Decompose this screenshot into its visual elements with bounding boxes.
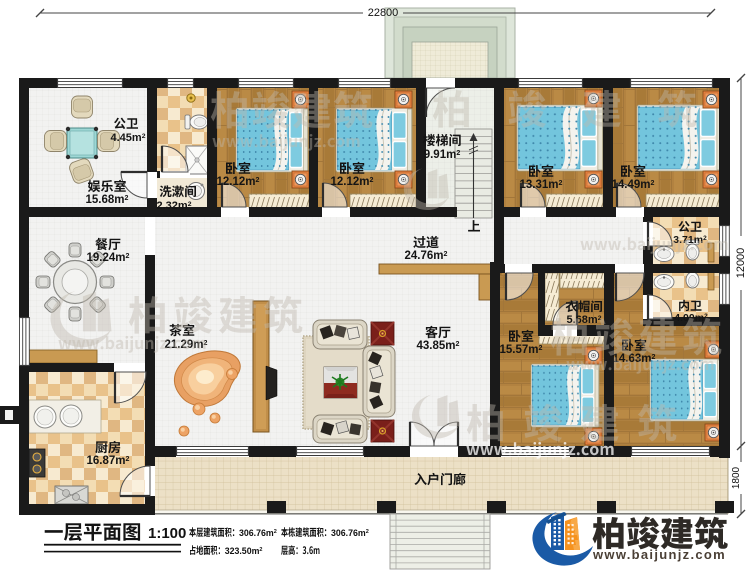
svg-text:22800: 22800	[368, 7, 399, 19]
svg-text:43.85m2: 43.85m2	[417, 340, 460, 352]
svg-text:306.76m2: 306.76m2	[239, 528, 277, 538]
svg-text:9.91m2: 9.91m2	[424, 149, 461, 161]
svg-text:12000: 12000	[735, 248, 747, 279]
svg-text:15.57m2: 15.57m2	[500, 344, 543, 356]
svg-text:24.76m2: 24.76m2	[405, 250, 448, 262]
svg-text:14.49m2: 14.49m2	[612, 179, 655, 191]
svg-text:1800: 1800	[731, 466, 742, 489]
svg-text:306.76m2: 306.76m2	[331, 528, 369, 538]
svg-text:12.12m2: 12.12m2	[217, 176, 260, 188]
svg-text:4.45m2: 4.45m2	[111, 132, 146, 144]
svg-text:16.87m2: 16.87m2	[87, 455, 130, 467]
svg-text:19.24m2: 19.24m2	[87, 252, 130, 264]
svg-text:1:100: 1:100	[148, 525, 186, 542]
svg-text:12.12m2: 12.12m2	[331, 176, 374, 188]
svg-text:www.baijunjz.com: www.baijunjz.com	[592, 547, 726, 562]
svg-text:15.68m2: 15.68m2	[86, 194, 129, 206]
svg-text:2.32m2: 2.32m2	[157, 200, 192, 212]
svg-text:13.31m2: 13.31m2	[520, 179, 563, 191]
svg-text:5.68m2: 5.68m2	[567, 314, 602, 326]
svg-text:323.50m2: 323.50m2	[225, 546, 263, 556]
